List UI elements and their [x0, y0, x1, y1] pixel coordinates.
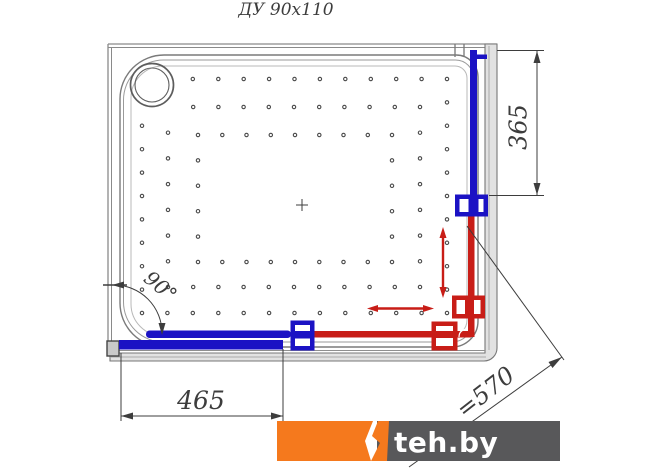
hot-connector-bottom — [432, 322, 458, 351]
technical-drawing: 365 465 =570 90° ДУ 90x110 teh.by — [0, 0, 670, 471]
shower-tray-rim — [120, 55, 478, 347]
cold-connector-bottom — [291, 321, 315, 351]
drain-icon — [131, 64, 174, 107]
cold-pipe-vertical — [470, 50, 477, 196]
cold-pipe-front-bar — [119, 340, 283, 350]
angle-90: 90° — [103, 266, 182, 335]
cold-connector-right — [455, 195, 488, 217]
logo-text: teh.by — [394, 426, 498, 459]
dimension-570-label: =570 — [451, 361, 520, 424]
logo-orange-block — [277, 421, 373, 461]
center-cross — [296, 199, 308, 211]
drawing-title: ДУ 90x110 — [237, 0, 333, 20]
antislip-dot-pattern — [140, 77, 448, 314]
logo-one-icon — [371, 421, 389, 461]
hot-water-pipe — [313, 204, 475, 338]
cold-pipe-horizontal — [146, 331, 291, 339]
angle-90-label: 90° — [139, 266, 182, 307]
dimension-465-label: 465 — [176, 386, 225, 415]
dimension-365-label: 365 — [505, 104, 533, 150]
tehby-logo: teh.by — [277, 421, 560, 461]
flow-arrow-vertical — [440, 227, 447, 298]
flow-arrow-horizontal — [367, 305, 434, 312]
hot-connector-right — [452, 296, 485, 319]
cold-water-pipe — [119, 50, 487, 350]
